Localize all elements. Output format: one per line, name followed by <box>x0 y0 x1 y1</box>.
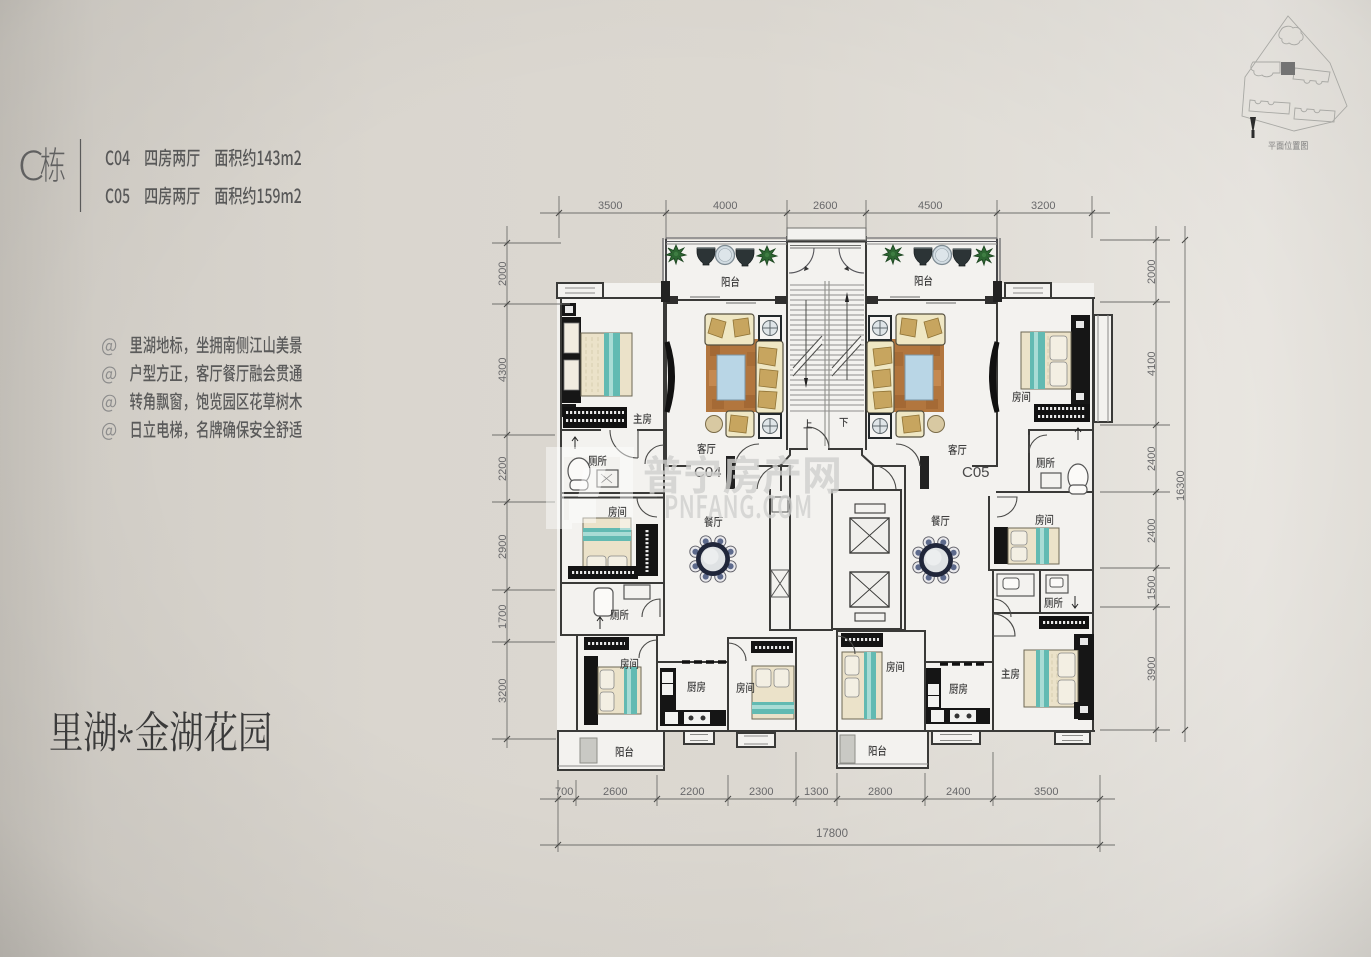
svg-text:16300: 16300 <box>1175 470 1187 501</box>
svg-text:2400: 2400 <box>946 786 970 798</box>
svg-text:4500: 4500 <box>918 200 942 212</box>
svg-text:2300: 2300 <box>749 786 773 798</box>
svg-text:3200: 3200 <box>1031 200 1055 212</box>
svg-text:3500: 3500 <box>598 200 622 212</box>
svg-text:4000: 4000 <box>713 200 737 212</box>
svg-text:2600: 2600 <box>603 786 627 798</box>
svg-text:4100: 4100 <box>1146 352 1158 376</box>
svg-text:17800: 17800 <box>816 828 848 840</box>
svg-text:3500: 3500 <box>1034 786 1058 798</box>
svg-text:700: 700 <box>555 786 573 798</box>
svg-text:1500: 1500 <box>1146 576 1158 600</box>
svg-text:4300: 4300 <box>497 358 509 382</box>
svg-text:C05: C05 <box>962 464 990 481</box>
svg-text:2800: 2800 <box>868 786 892 798</box>
svg-text:2400: 2400 <box>1146 519 1158 543</box>
svg-text:1700: 1700 <box>497 605 509 629</box>
svg-text:3900: 3900 <box>1146 657 1158 681</box>
svg-text:1300: 1300 <box>804 786 828 798</box>
svg-text:2600: 2600 <box>813 200 837 212</box>
svg-text:2200: 2200 <box>680 786 704 798</box>
svg-text:2400: 2400 <box>1146 447 1158 471</box>
svg-text:2900: 2900 <box>497 535 509 559</box>
svg-text:3200: 3200 <box>497 679 509 703</box>
svg-text:2000: 2000 <box>497 262 509 286</box>
svg-text:2000: 2000 <box>1146 260 1158 284</box>
svg-text:2200: 2200 <box>497 457 509 481</box>
